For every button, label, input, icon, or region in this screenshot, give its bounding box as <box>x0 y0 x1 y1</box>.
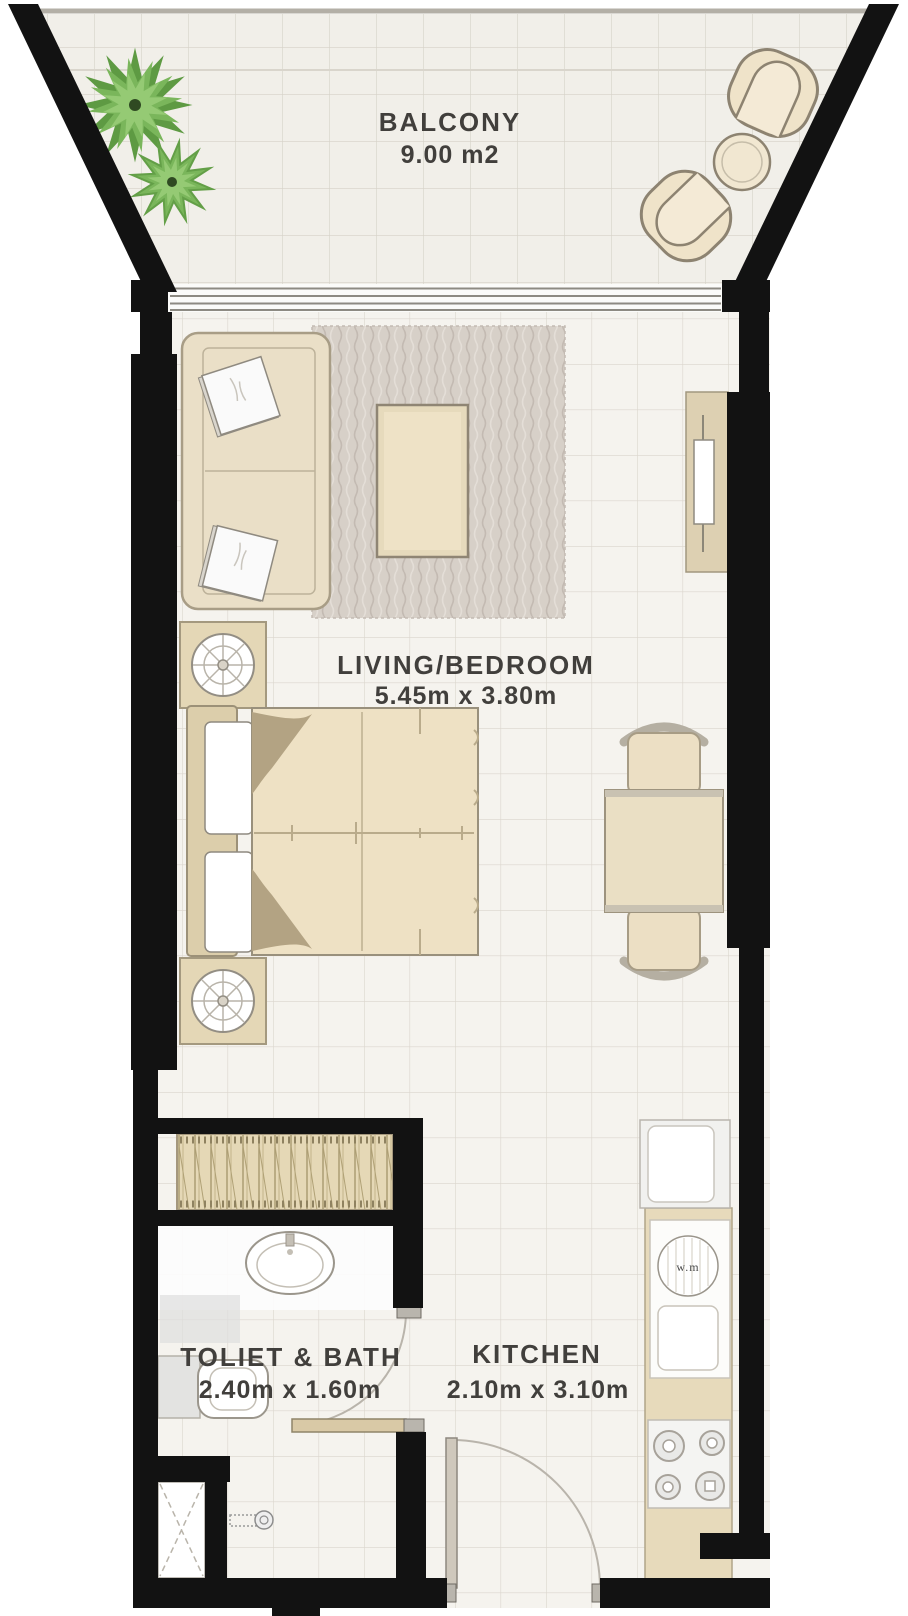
dining-chair-top <box>624 727 704 795</box>
wall-bottom-right <box>600 1578 770 1608</box>
entrance-door-leaf <box>446 1438 457 1588</box>
tv-unit <box>686 392 728 572</box>
floor-plan: w.m <box>0 0 908 1616</box>
living-bedroom-label: LIVING/BEDROOM <box>337 650 595 680</box>
wall-right <box>727 392 770 948</box>
fridge <box>640 1120 730 1208</box>
bed <box>187 706 478 956</box>
coffee-table <box>377 405 468 557</box>
kitchen-size-label: 2.10m x 3.10m <box>447 1376 630 1404</box>
wall-bathroom-top <box>145 1118 423 1134</box>
wall-bathroom-right <box>393 1118 423 1308</box>
table-lamp-icon <box>192 634 254 696</box>
balcony-area-label: 9.00 m2 <box>401 141 500 169</box>
kitchen-area: w.m <box>640 1120 732 1580</box>
floor-plan-page: w.m <box>0 0 908 1616</box>
stove <box>648 1420 730 1508</box>
bed-pillow-bottom <box>205 852 253 952</box>
toilet-bath-size-label: 2.40m x 1.60m <box>199 1376 382 1404</box>
wardrobe <box>177 1134 393 1210</box>
balcony-label: BALCONY <box>379 107 522 137</box>
nightstand-bottom <box>180 958 266 1044</box>
balcony-sliding-door <box>168 284 722 312</box>
table-lamp-icon <box>192 970 254 1032</box>
toilet-bath-label: TOLIET & BATH <box>180 1342 401 1372</box>
balcony-table <box>714 134 770 190</box>
nightstand-top <box>180 622 266 708</box>
bathroom-door-leaf <box>292 1419 406 1432</box>
sofa <box>182 333 330 609</box>
dining-chair-bottom <box>624 908 704 976</box>
washing-machine-label: w.m <box>676 1260 699 1274</box>
kitchen-label: KITCHEN <box>472 1339 602 1369</box>
bed-pillow-top <box>205 722 253 834</box>
living-bedroom-size-label: 5.45m x 3.80m <box>375 682 558 710</box>
washing-machine: w.m <box>650 1220 730 1378</box>
wall-left <box>131 354 177 1070</box>
sink <box>246 1232 334 1294</box>
shower <box>158 1482 205 1578</box>
dining-table <box>605 790 723 912</box>
